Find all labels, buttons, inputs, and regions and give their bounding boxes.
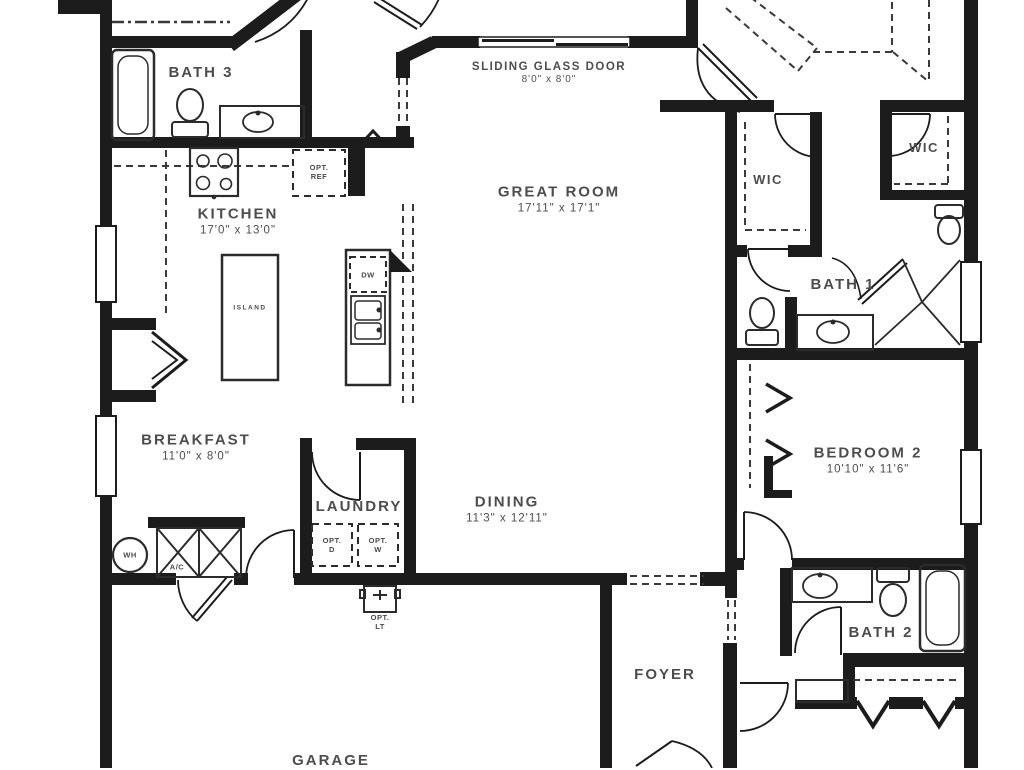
sink-bath3 [220,106,304,138]
toilet-bath3 [172,89,208,137]
dishwasher-box [350,257,386,292]
water-heater [113,538,147,572]
wic1-shelf-dash [745,122,806,230]
diagonal-walls [230,0,434,58]
tub-bath3 [112,50,154,140]
kitchen-greatroom-divider [403,204,413,408]
door-patio [374,0,440,29]
tub-bath2 [920,565,965,651]
floor-plan-drawing [0,0,1024,768]
master-optional-diagonal [726,0,817,71]
sliding-glass-door-symbol [478,37,630,47]
wic2-shelf-dash [894,116,948,184]
door-bath-1 [748,249,790,291]
opt-laundry-tub [360,586,400,612]
windows [96,226,981,524]
floor-plan: BATH 3 KITCHEN 17'0" x 13'0" GREAT ROOM … [0,0,1024,768]
sink-bath2 [792,568,872,602]
door-shower [832,258,907,304]
chevrons [152,131,955,726]
toilet-water-closet [935,205,963,244]
kitchen-sink [351,296,385,344]
linen-niche [796,680,848,702]
pantry-bifold [152,332,186,388]
door-bath-2 [795,607,841,655]
door-garage-entry [246,530,294,578]
opt-washer-box [358,524,398,566]
opt-dryer-box [312,524,352,566]
toilet-bath2 [877,568,909,616]
hall-cased-opening [728,600,735,640]
door-laundry [312,452,360,500]
door-hall-bedroom-3 [740,683,788,731]
door-bedroom-2 [744,512,792,560]
ac-unit [157,528,241,577]
window-left-kitchen [96,226,116,302]
pantry-bifold-inner [152,341,177,379]
kitchen-hall-cased-opening [399,78,407,126]
closet-shelf-chevron-1 [766,384,790,412]
door-wic-2 [888,114,930,156]
bifold-door-1 [857,701,889,726]
range-cooktop [190,148,238,199]
door-front-entry [636,741,712,768]
window-right-bath1 [961,262,981,342]
window-right-bedroom2 [961,450,981,524]
opt-refrigerator-box [293,150,345,196]
foyer-cased-opening [630,576,704,584]
master-optional-outline [813,0,929,83]
toilet-bath1 [746,298,778,345]
kitchen-island [222,255,278,380]
door-ac-closet [178,577,232,621]
sink-bath1 [797,315,873,350]
bifold-door-2 [923,701,955,726]
window-left-breakfast [96,416,116,496]
